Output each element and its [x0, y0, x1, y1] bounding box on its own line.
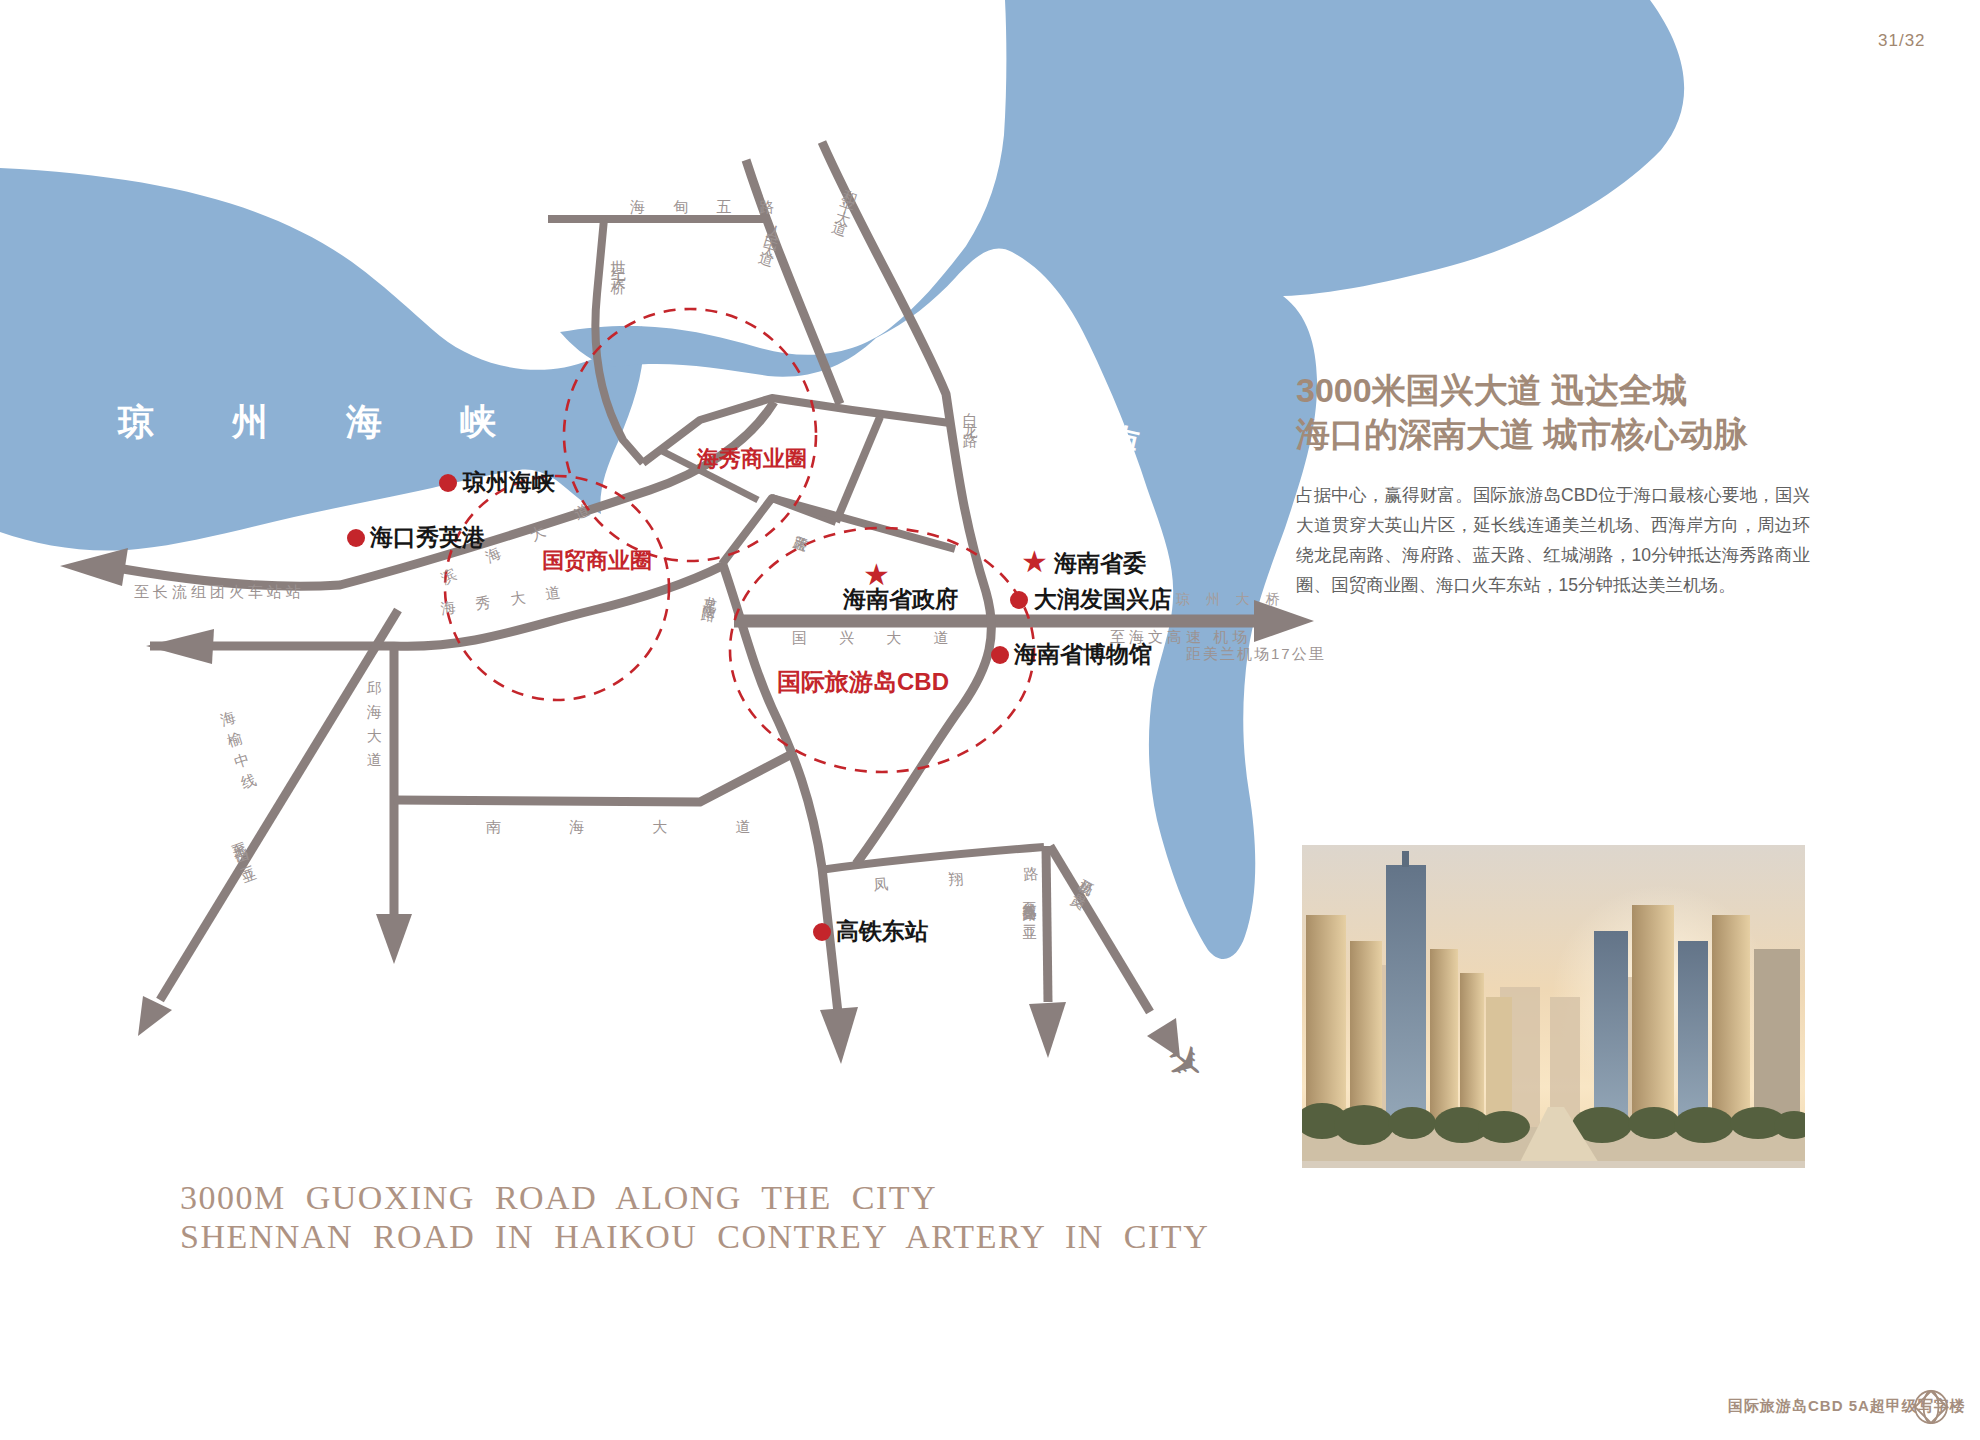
dot-marker-hsr-east-station: [813, 923, 831, 941]
aside-title-line2: 海口的深南大道 城市核心动脉: [1296, 412, 1856, 456]
landmark-rtmart: 大润发国兴店: [1034, 587, 1172, 612]
aside-body-text: 占据中心，赢得财富。国际旅游岛CBD位于海口最核心要地，国兴大道贯穿大英山片区，…: [1296, 480, 1810, 600]
landmark-museum: 海南省博物馆: [1014, 642, 1152, 667]
road-label-to-changliu: 至长流组团火车站站: [134, 583, 305, 600]
sea-name-strait: 琼 州 海 峡: [118, 398, 530, 447]
road-label-qiongzhou-bridge: 琼 州 大 桥: [1176, 591, 1286, 607]
road-label-shiji-bridge: 世纪大桥: [610, 248, 627, 276]
road-label-meilan-distance: 距美兰机场17公里: [1186, 645, 1326, 662]
dot-marker-xiuying-port: [347, 529, 365, 547]
road-label-nanhai: 南 海 大 道: [486, 818, 783, 835]
aside-title-line1: 3000米国兴大道 迅达全城: [1296, 368, 1856, 412]
circle-label-haixiu: 海秀商业圈: [697, 444, 807, 474]
landmark-xiuying-port: 海口秀英港: [370, 525, 485, 550]
circle-label-cbd: 国际旅游岛CBD: [777, 666, 949, 698]
landmark-provincial-committee: 海南省委: [1054, 551, 1146, 576]
star-marker-provincial-committee: [1021, 547, 1048, 577]
brochure-page: 琼 州 海 峡 南渡江 海 甸 五 路 世纪大桥 人民大道 和平大道 白龙路 南…: [0, 0, 1980, 1440]
landmark-provincial-government: 海南省政府: [843, 587, 958, 612]
dot-marker-rtmart: [1010, 591, 1028, 609]
road-label-bailong: 白龙路: [962, 400, 979, 433]
dot-marker-qiongzhou-strait: [439, 474, 457, 492]
brand-logo-icon: [1910, 1386, 1952, 1428]
building-render: [1302, 845, 1805, 1168]
dot-marker-museum: [991, 646, 1009, 664]
road-label-to-dongxian: 至东线高速公路 三亚: [1022, 890, 1038, 916]
building-render-art: [1302, 845, 1805, 1168]
road-label-longkun: 龙昆南路: [703, 584, 722, 603]
english-heading-line2: SHENNAN ROAD IN HAIKOU CONTREY ARTERY IN…: [180, 1217, 1209, 1256]
english-heading: 3000M GUOXING ROAD ALONG THE CITY SHENNA…: [180, 1178, 1209, 1256]
page-number: 31/32: [1878, 31, 1926, 51]
aside-panel: 3000米国兴大道 迅达全城 海口的深南大道 城市核心动脉 占据中心，赢得财富。…: [1296, 368, 1856, 600]
landmark-qiongzhou-strait: 琼州海峡: [463, 470, 555, 495]
road-label-qiuhai: 邱海大道: [366, 668, 383, 764]
landmark-hsr-east-station: 高铁东站: [836, 919, 928, 944]
road-label-guoxing: 国 兴 大 道: [792, 629, 963, 646]
circle-label-guomao: 国贸商业圈: [542, 546, 652, 576]
english-heading-line1: 3000M GUOXING ROAD ALONG THE CITY: [180, 1178, 1209, 1217]
road-label-haidian5: 海 甸 五 路: [630, 198, 787, 215]
